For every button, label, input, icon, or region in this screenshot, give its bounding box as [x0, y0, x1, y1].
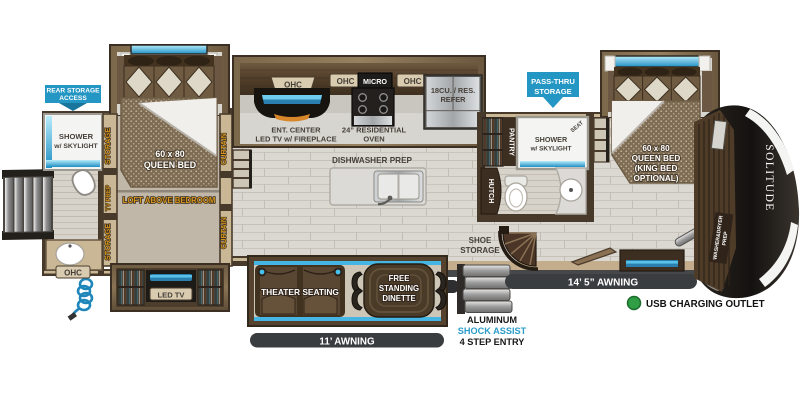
- svg-text:SHOE: SHOE: [469, 236, 492, 245]
- svg-text:OVEN: OVEN: [363, 135, 384, 144]
- svg-text:4 STEP ENTRY: 4 STEP ENTRY: [460, 337, 525, 347]
- svg-text:OPTIONAL): OPTIONAL): [633, 174, 678, 183]
- svg-text:PASS-THRU: PASS-THRU: [531, 77, 575, 86]
- svg-text:SHOWER: SHOWER: [59, 132, 94, 141]
- svg-text:14’ 5” AWNING: 14’ 5” AWNING: [568, 278, 638, 289]
- svg-text:w/ SKYLIGHT: w/ SKYLIGHT: [53, 143, 98, 150]
- svg-text:STORAGE: STORAGE: [103, 224, 112, 260]
- svg-text:REAR STORAGE: REAR STORAGE: [46, 88, 100, 95]
- svg-text:24” RESIDENTIAL: 24” RESIDENTIAL: [342, 126, 407, 135]
- svg-text:THEATER SEATING: THEATER SEATING: [261, 287, 339, 297]
- svg-text:LED TV: LED TV: [157, 291, 185, 300]
- svg-text:DISHWASHER PREP: DISHWASHER PREP: [332, 156, 413, 165]
- svg-text:CURTAIN: CURTAIN: [219, 133, 228, 165]
- svg-text:STANDING: STANDING: [379, 284, 419, 293]
- svg-text:REFER: REFER: [440, 95, 466, 104]
- svg-text:MICRO: MICRO: [363, 77, 387, 86]
- svg-text:STORAGE: STORAGE: [103, 128, 112, 164]
- svg-text:SHOCK ASSIST: SHOCK ASSIST: [458, 326, 527, 336]
- svg-text:PANTRY: PANTRY: [508, 128, 515, 156]
- svg-text:QUEEN BED: QUEEN BED: [144, 160, 196, 170]
- svg-text:LOFT ABOVE BEDROOM: LOFT ABOVE BEDROOM: [123, 196, 216, 205]
- svg-text:LED TV w/ FIREPLACE: LED TV w/ FIREPLACE: [255, 135, 336, 144]
- svg-text:ACCESS: ACCESS: [59, 95, 87, 102]
- svg-text:OHC: OHC: [337, 77, 355, 86]
- svg-text:18CU. / RES.: 18CU. / RES.: [431, 86, 475, 95]
- svg-text:TV PREP: TV PREP: [106, 185, 112, 211]
- svg-text:HUTCH: HUTCH: [487, 179, 494, 204]
- svg-text:CURTAIN: CURTAIN: [219, 217, 228, 249]
- svg-text:w/ SKYLIGHT: w/ SKYLIGHT: [530, 146, 572, 153]
- svg-text:USB CHARGING OUTLET: USB CHARGING OUTLET: [646, 299, 765, 310]
- svg-text:STORAGE: STORAGE: [460, 246, 500, 255]
- svg-text:ALUMINUM: ALUMINUM: [467, 315, 517, 325]
- svg-text:DINETTE: DINETTE: [382, 294, 415, 303]
- svg-text:SOLITUDE: SOLITUDE: [763, 144, 775, 211]
- svg-text:(KING BED: (KING BED: [635, 164, 678, 173]
- svg-text:FREE: FREE: [389, 274, 410, 283]
- svg-text:QUEEN BED: QUEEN BED: [632, 154, 681, 163]
- svg-text:SHOWER: SHOWER: [535, 135, 568, 144]
- svg-text:STORAGE: STORAGE: [534, 87, 571, 96]
- svg-text:60 x 80: 60 x 80: [155, 149, 184, 159]
- svg-text:11’ AWNING: 11’ AWNING: [319, 337, 375, 348]
- svg-text:OHC: OHC: [64, 269, 82, 278]
- svg-text:60 x 80: 60 x 80: [642, 144, 670, 153]
- svg-text:OHC: OHC: [404, 77, 422, 86]
- svg-text:ENT. CENTER: ENT. CENTER: [271, 126, 321, 135]
